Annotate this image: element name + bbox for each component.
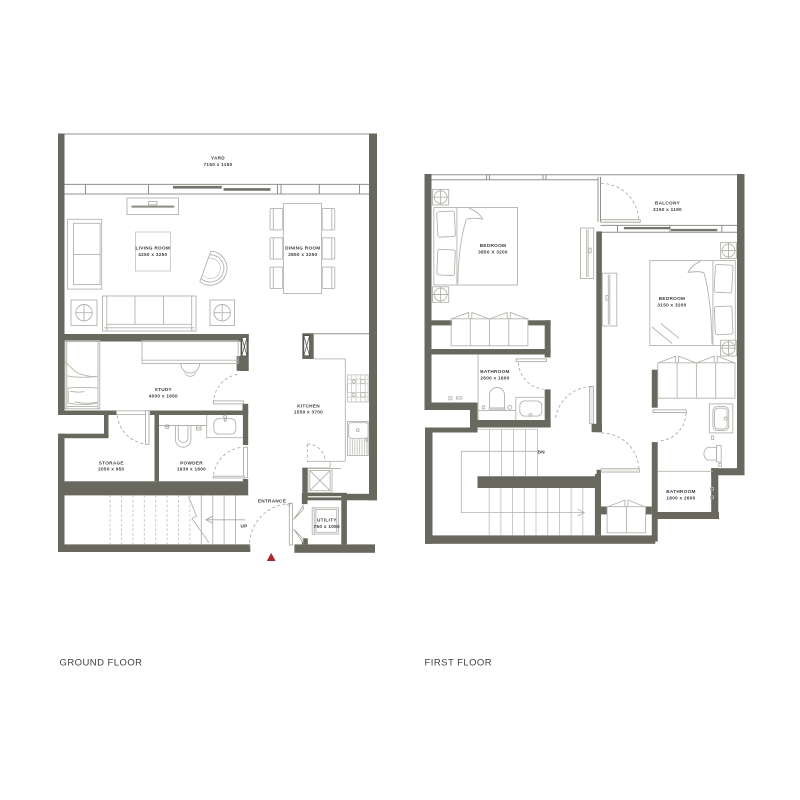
svg-text:ENTRANCE: ENTRANCE	[258, 499, 286, 504]
svg-text:1550 x 3700: 1550 x 3700	[294, 410, 323, 415]
svg-text:UP: UP	[240, 524, 247, 529]
svg-text:BATHROOM: BATHROOM	[480, 369, 510, 374]
svg-text:4000 x 1650: 4000 x 1650	[149, 393, 178, 398]
svg-text:DN: DN	[538, 449, 546, 454]
svg-text:750 x 1050: 750 x 1050	[314, 524, 340, 529]
svg-text:1930 x 1600: 1930 x 1600	[177, 467, 206, 472]
svg-text:POWDER: POWDER	[180, 460, 203, 465]
svg-text:2050 x 950: 2050 x 950	[98, 467, 124, 472]
svg-text:DINING ROOM: DINING ROOM	[285, 246, 320, 251]
svg-text:GROUND FLOOR: GROUND FLOOR	[60, 658, 143, 669]
svg-text:2850 x 3250: 2850 x 3250	[288, 252, 317, 257]
svg-text:STORAGE: STORAGE	[99, 460, 124, 465]
svg-text:UTILITY: UTILITY	[317, 518, 337, 523]
svg-text:7150 x 1150: 7150 x 1150	[204, 162, 233, 167]
svg-text:YARD: YARD	[211, 155, 225, 160]
svg-text:4250 x 3250: 4250 x 3250	[138, 252, 167, 257]
svg-text:LIVING ROOM: LIVING ROOM	[136, 246, 171, 251]
svg-text:BEDROOM: BEDROOM	[659, 296, 685, 301]
svg-text:KITCHEN: KITCHEN	[297, 403, 320, 408]
svg-text:BEDROOM: BEDROOM	[480, 243, 506, 248]
svg-text:BATHROOM: BATHROOM	[666, 489, 696, 494]
svg-text:FIRST FLOOR: FIRST FLOOR	[425, 658, 493, 669]
svg-text:1800 x 2600: 1800 x 2600	[666, 496, 695, 501]
svg-text:STUDY: STUDY	[155, 387, 173, 392]
svg-text:2600 x 1600: 2600 x 1600	[480, 376, 509, 381]
svg-text:3850 X 3200: 3850 X 3200	[478, 249, 508, 254]
svg-text:BALCONY: BALCONY	[655, 200, 681, 205]
svg-text:3150 x 3200: 3150 x 3200	[657, 303, 686, 308]
svg-text:3150 x 1190: 3150 x 1190	[653, 207, 682, 212]
